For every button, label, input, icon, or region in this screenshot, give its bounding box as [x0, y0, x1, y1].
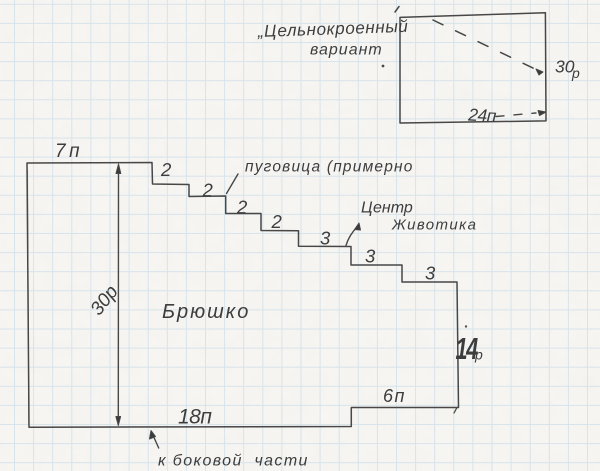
svg-text:р: р: [474, 347, 483, 363]
svg-text:7п: 7п: [55, 141, 83, 162]
svg-text:2: 2: [202, 180, 214, 201]
svg-text:2: 2: [236, 197, 248, 218]
svg-text:3: 3: [365, 246, 376, 267]
svg-text:вариант: вариант: [310, 42, 383, 59]
svg-text:Брюшко: Брюшко: [162, 301, 250, 323]
svg-text:3: 3: [320, 228, 331, 249]
svg-text:к боковой части: к боковой части: [158, 453, 309, 470]
svg-text:Центр: Центр: [361, 200, 413, 217]
svg-text:24п: 24п: [467, 104, 497, 126]
svg-text:2: 2: [160, 159, 172, 180]
svg-text:р: р: [571, 65, 580, 81]
svg-text:пуговица (примерно: пуговица (примерно: [245, 159, 414, 176]
svg-text:18п: 18п: [178, 406, 212, 429]
svg-text:Животика: Животика: [391, 217, 477, 234]
svg-text:6п: 6п: [383, 386, 406, 406]
svg-text:2: 2: [271, 211, 283, 232]
svg-text:3: 3: [425, 263, 436, 284]
